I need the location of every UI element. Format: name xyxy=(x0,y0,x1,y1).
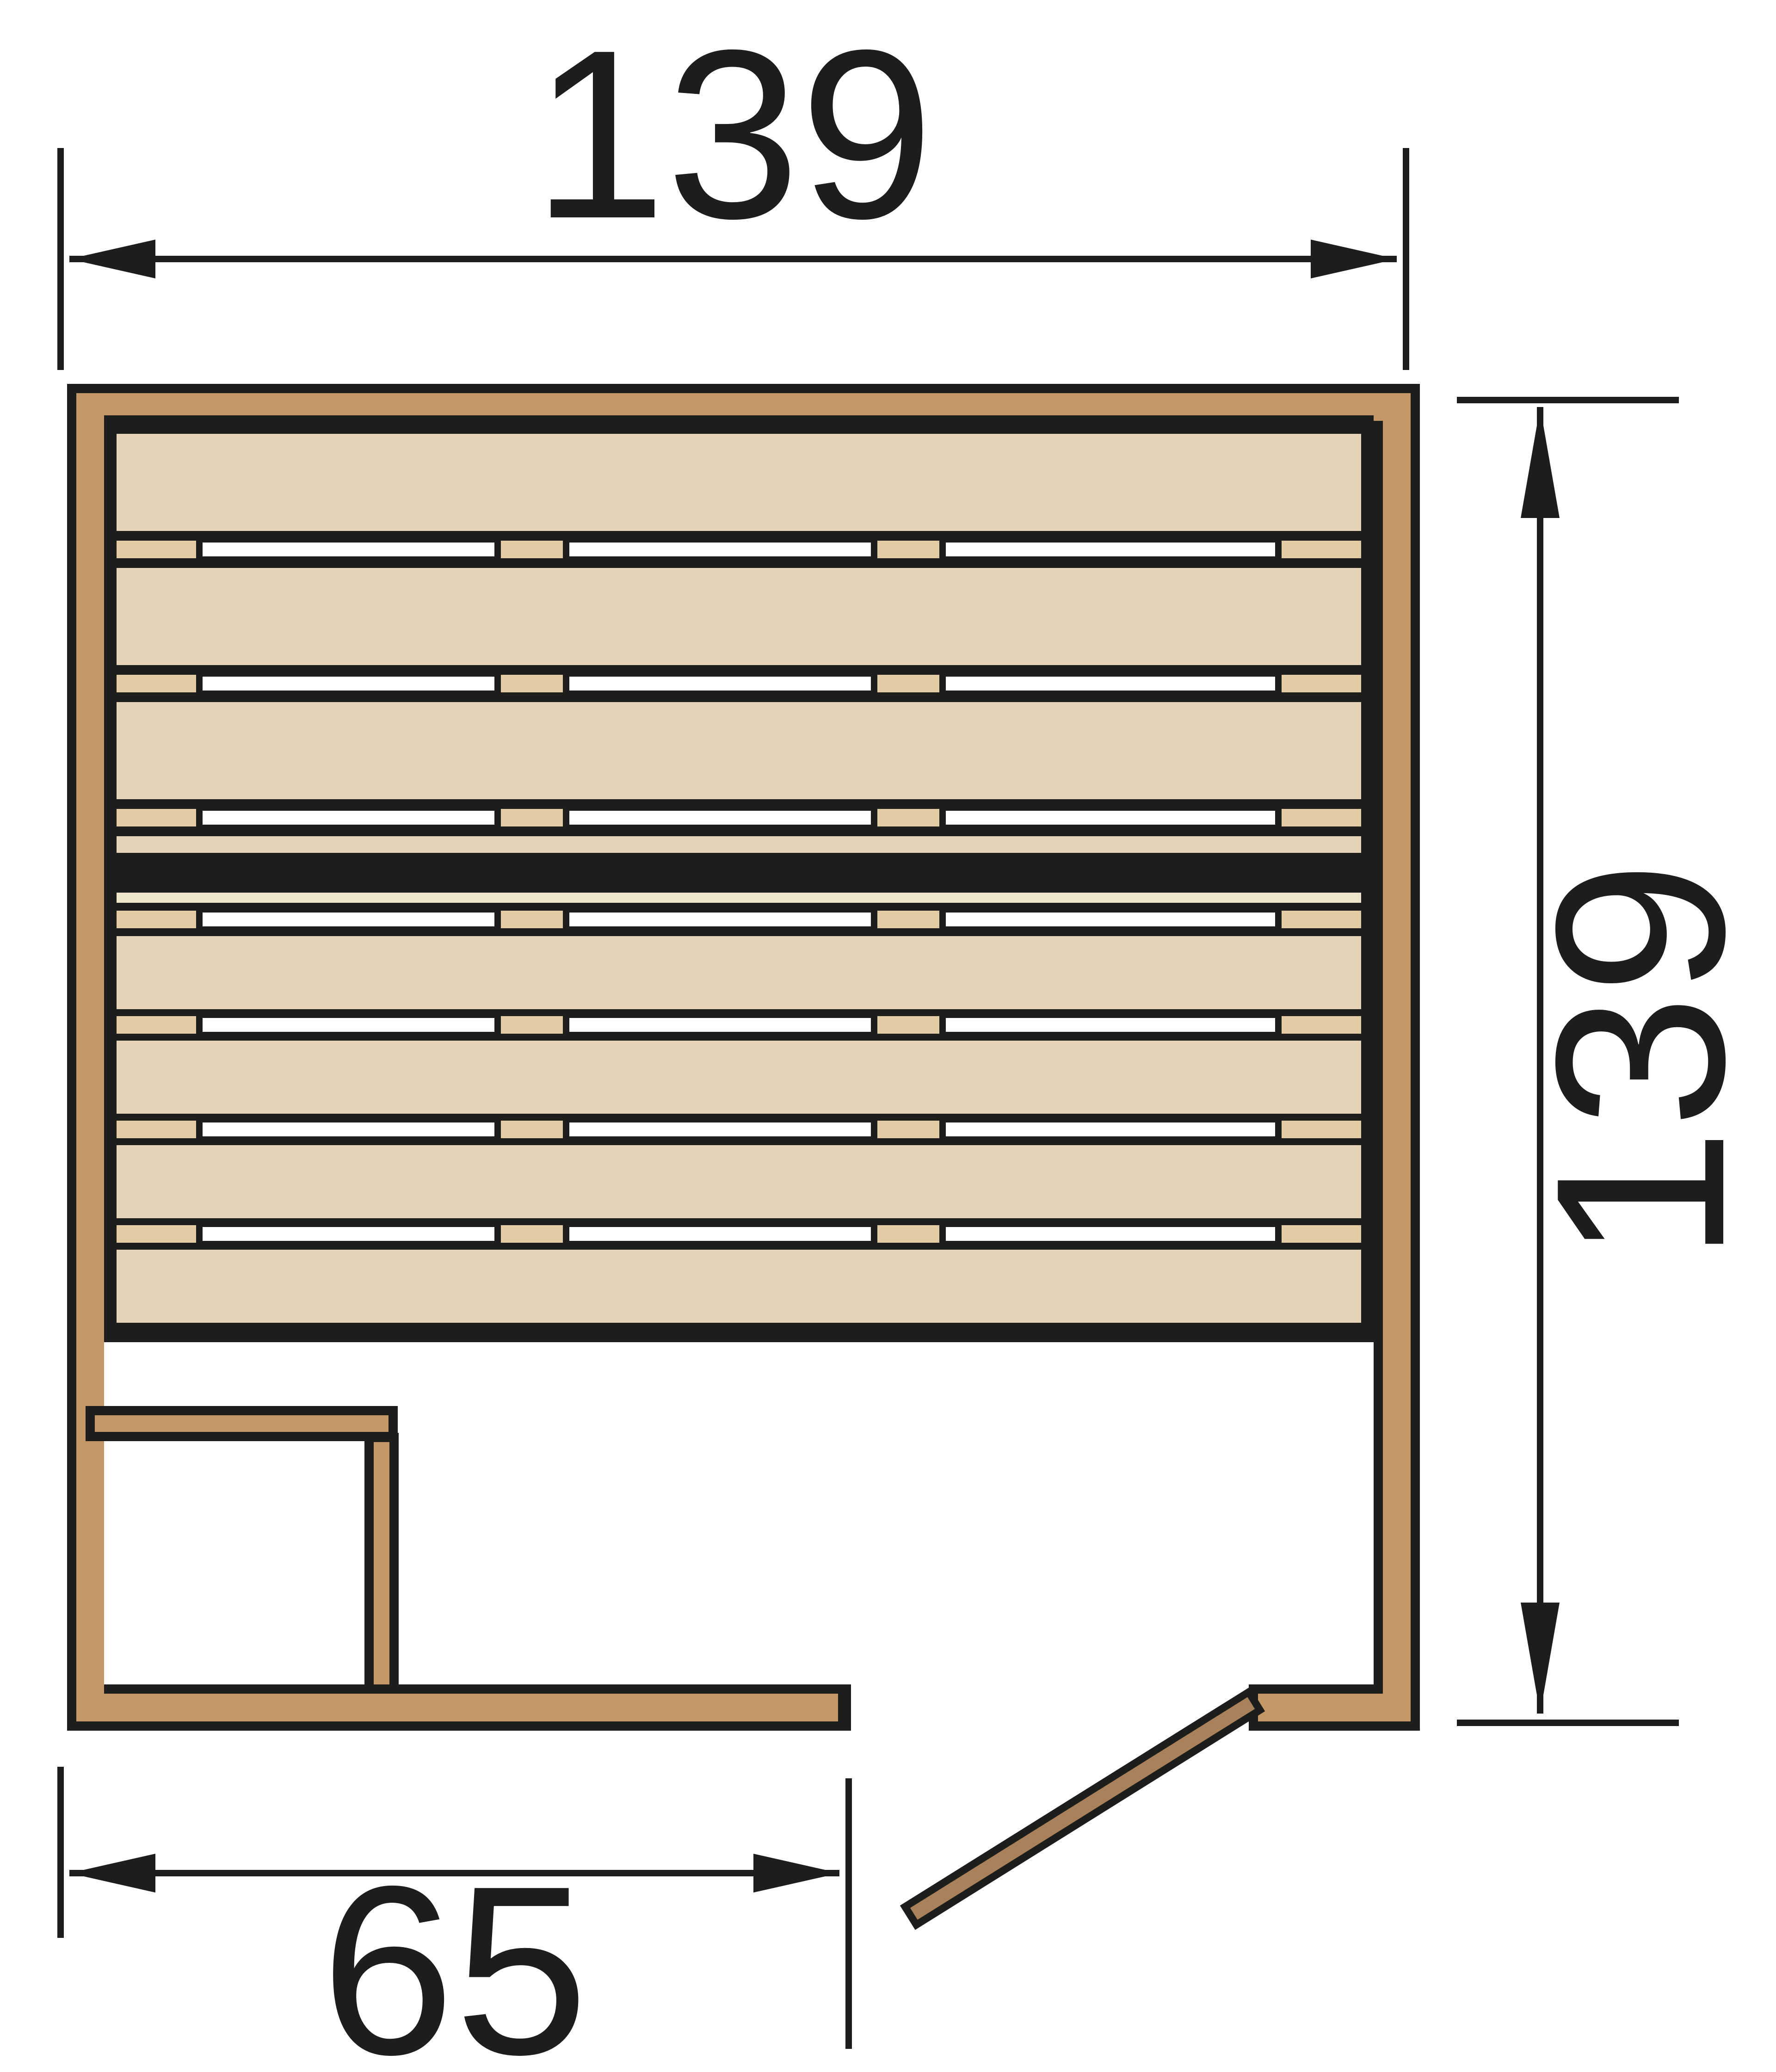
slat-gap-spacer xyxy=(877,1121,939,1138)
slat-gap-slot xyxy=(946,1227,1275,1241)
slat-gap-spacer xyxy=(877,541,939,558)
right-dimension-label: 139 xyxy=(1506,861,1775,1262)
slat-gap-slot xyxy=(569,1018,871,1032)
slat-gap-spacer xyxy=(1282,675,1361,692)
floor-area xyxy=(104,1342,1374,1684)
slat-gap-slot xyxy=(569,913,871,926)
bench-plank xyxy=(117,434,1361,531)
bench-plank xyxy=(117,1041,1361,1114)
slat-gap-slot xyxy=(946,1122,1275,1136)
slat-gap-spacer xyxy=(877,1225,939,1243)
left-wall-wood xyxy=(76,393,104,1721)
slat-gap-slot xyxy=(569,677,871,691)
bench-plank xyxy=(117,568,1361,665)
slat-gap-slot xyxy=(203,543,494,556)
slat-gap-spacer xyxy=(501,911,563,928)
slat-gap-spacer xyxy=(877,1016,939,1034)
slat-gap-spacer xyxy=(1282,1016,1361,1034)
slat-gap-spacer xyxy=(877,911,939,928)
slat-gap-spacer xyxy=(1282,1121,1361,1138)
slat-gap-spacer xyxy=(1282,541,1361,558)
bench-plank xyxy=(117,1145,1361,1218)
slat-gap-slot xyxy=(569,1122,871,1136)
corner-bench-board-wood xyxy=(95,1415,388,1432)
slat-gap-slot xyxy=(946,913,1275,926)
slat-gap-spacer xyxy=(117,1016,196,1034)
slat-gap-spacer xyxy=(877,809,939,826)
slat-gap-spacer xyxy=(877,675,939,692)
slat-gap-spacer xyxy=(501,1225,563,1243)
slat-gap-slot xyxy=(569,1227,871,1241)
slat-gap-slot xyxy=(203,1018,494,1032)
slat-gap-spacer xyxy=(501,809,563,826)
slat-gap-slot xyxy=(203,1122,494,1136)
bottom-dimension-label: 65 xyxy=(321,1836,588,2072)
bench-deck xyxy=(104,415,1374,1342)
slat-gap-spacer xyxy=(117,911,196,928)
slat-gap-slot xyxy=(946,543,1275,556)
sauna-floor-plan: 139 xyxy=(0,0,1776,2072)
bottom-wall-wood xyxy=(76,1694,838,1721)
bench-plank xyxy=(117,936,1361,1009)
slat-gap-slot xyxy=(946,811,1275,825)
slat-gap-spacer xyxy=(1282,911,1361,928)
bench-plank xyxy=(117,836,1361,853)
slat-gap-slot xyxy=(569,811,871,825)
slat-gap-spacer xyxy=(117,675,196,692)
slat-gap-spacer xyxy=(1282,809,1361,826)
slat-gap-spacer xyxy=(501,675,563,692)
bench-plank xyxy=(117,702,1361,799)
sauna-plan-canvas: 139 xyxy=(0,0,1776,2072)
slat-gap-slot xyxy=(203,1227,494,1241)
right-wall-wood xyxy=(1383,393,1411,1721)
slat-gap-spacer xyxy=(117,1225,196,1243)
slat-gap-slot xyxy=(203,677,494,691)
bench-plank xyxy=(117,1250,1361,1323)
slat-gap-spacer xyxy=(501,1016,563,1034)
bench-center-band xyxy=(117,853,1361,893)
bench-band-strip xyxy=(117,893,1361,903)
slat-gap-spacer xyxy=(501,541,563,558)
slat-gap-spacer xyxy=(1282,1225,1361,1243)
slat-gap-spacer xyxy=(117,1121,196,1138)
slat-gap-slot xyxy=(203,811,494,825)
slat-gap-slot xyxy=(569,543,871,556)
slat-gap-slot xyxy=(946,1018,1275,1032)
corner-bench-leg-wood xyxy=(374,1442,389,1684)
door-post-wood xyxy=(1258,1694,1411,1721)
slat-gap-slot xyxy=(946,677,1275,691)
slat-gap-spacer xyxy=(117,541,196,558)
slat-gap-spacer xyxy=(117,809,196,826)
slat-gap-slot xyxy=(203,913,494,926)
top-dimension-label: 139 xyxy=(532,0,934,269)
slat-gap-spacer xyxy=(501,1121,563,1138)
